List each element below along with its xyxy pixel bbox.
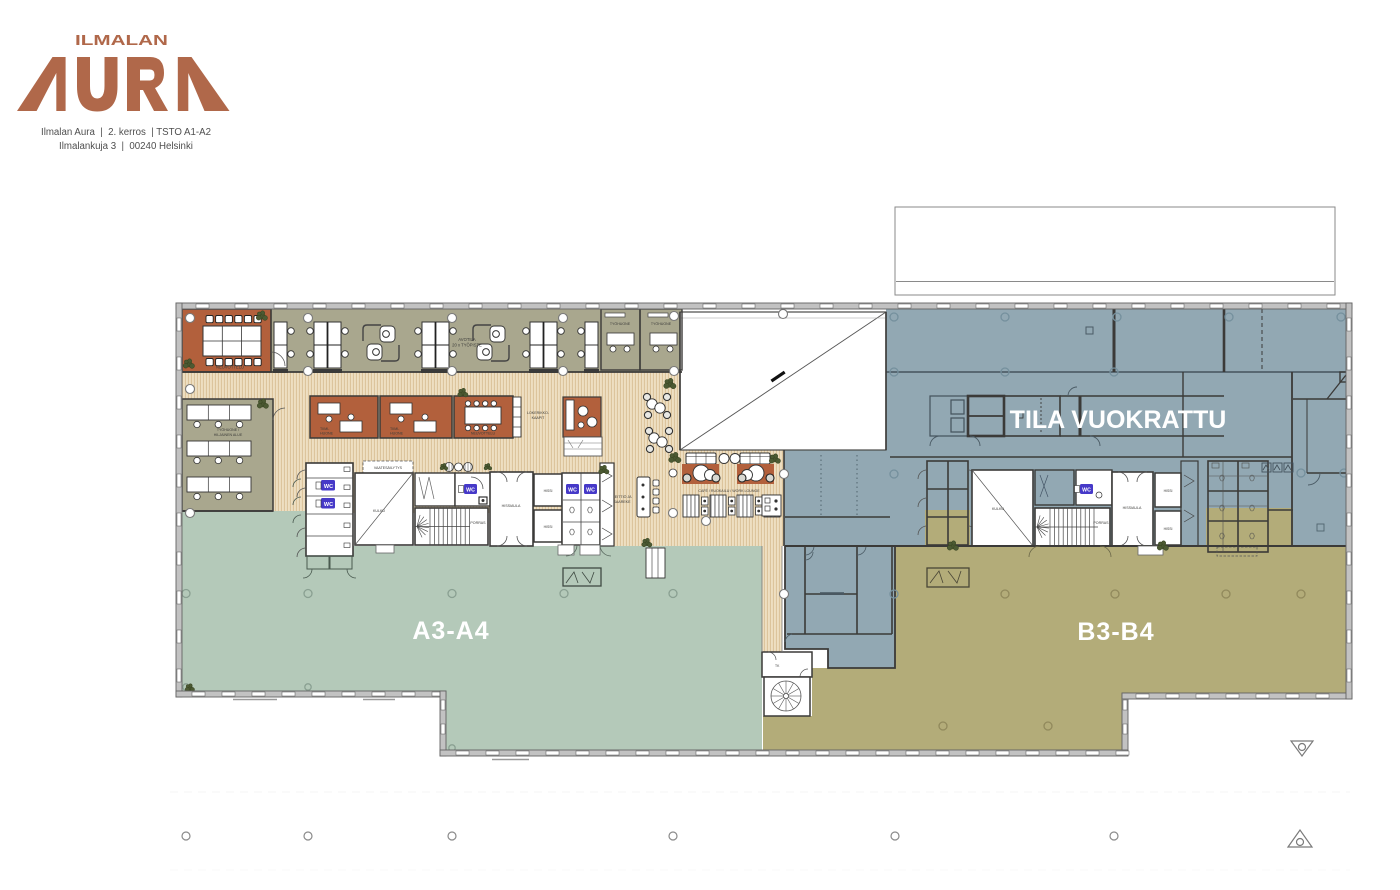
svg-text:TK: TK	[775, 664, 780, 668]
svg-text:WC: WC	[568, 488, 577, 494]
svg-text:WC: WC	[324, 484, 333, 490]
svg-text:KULKU: KULKU	[373, 509, 385, 513]
svg-text:B3-B4: B3-B4	[1077, 618, 1154, 646]
svg-text:WC: WC	[1082, 488, 1091, 494]
svg-text:HISSI: HISSI	[544, 489, 553, 493]
svg-text:20 x TYÖPISTE: 20 x TYÖPISTE	[452, 343, 482, 348]
svg-text:KULKU: KULKU	[992, 507, 1004, 511]
svg-text:SAAREKE: SAAREKE	[614, 500, 632, 504]
svg-text:HISSIAULA: HISSIAULA	[502, 504, 521, 508]
svg-text:NEUVOTTELU: NEUVOTTELU	[471, 432, 496, 436]
svg-text:HISSI: HISSI	[544, 525, 553, 529]
svg-text:WC: WC	[466, 488, 475, 494]
svg-text:WC: WC	[324, 502, 333, 508]
svg-text:CAFÉ / RUOKAILU / WORK LOUNGE: CAFÉ / RUOKAILU / WORK LOUNGE	[698, 488, 760, 493]
svg-text:KAAPIT: KAAPIT	[532, 416, 546, 420]
svg-text:PORRAS: PORRAS	[1093, 521, 1109, 525]
svg-text:HUONE: HUONE	[320, 432, 334, 436]
svg-text:HISSI: HISSI	[1164, 489, 1173, 493]
svg-text:Ilmalan Aura | 2. kerros |: Ilmalan Aura | 2. kerros | TSTO A1-A2	[41, 127, 211, 138]
svg-text:WC: WC	[586, 488, 595, 494]
svg-text:LOKERIKKO-: LOKERIKKO-	[527, 411, 550, 415]
svg-text:ILMALAN: ILMALAN	[75, 33, 168, 49]
svg-text:HUONE: HUONE	[390, 432, 404, 436]
svg-text:A3-A4: A3-A4	[412, 617, 489, 645]
svg-text:KEITTIÖ JA: KEITTIÖ JA	[612, 495, 632, 499]
svg-text:VAATESÄILYTYS: VAATESÄILYTYS	[374, 466, 403, 470]
svg-text:TYÖHUONE: TYÖHUONE	[610, 322, 631, 326]
svg-text:AVOTILA: AVOTILA	[458, 337, 476, 342]
svg-text:PORRAS: PORRAS	[470, 521, 486, 525]
svg-text:TIIMI-: TIIMI-	[320, 427, 330, 431]
svg-text:HISSIAULA: HISSIAULA	[1123, 506, 1142, 510]
svg-text:Ilmalankuja 3 | 00240 Helsin: Ilmalankuja 3 | 00240 Helsinki	[59, 141, 193, 152]
svg-text:HISSI: HISSI	[1164, 527, 1173, 531]
svg-text:NEUVOTTELU: NEUVOTTELU	[216, 365, 244, 370]
svg-text:HILJAINEN ALUE: HILJAINEN ALUE	[214, 433, 243, 437]
svg-text:TILA VUOKRATTU: TILA VUOKRATTU	[1010, 406, 1227, 434]
svg-text:TYÖHUONE /: TYÖHUONE /	[217, 428, 239, 432]
svg-text:TIIMI-: TIIMI-	[390, 427, 400, 431]
svg-text:TYÖHUONE: TYÖHUONE	[651, 322, 672, 326]
